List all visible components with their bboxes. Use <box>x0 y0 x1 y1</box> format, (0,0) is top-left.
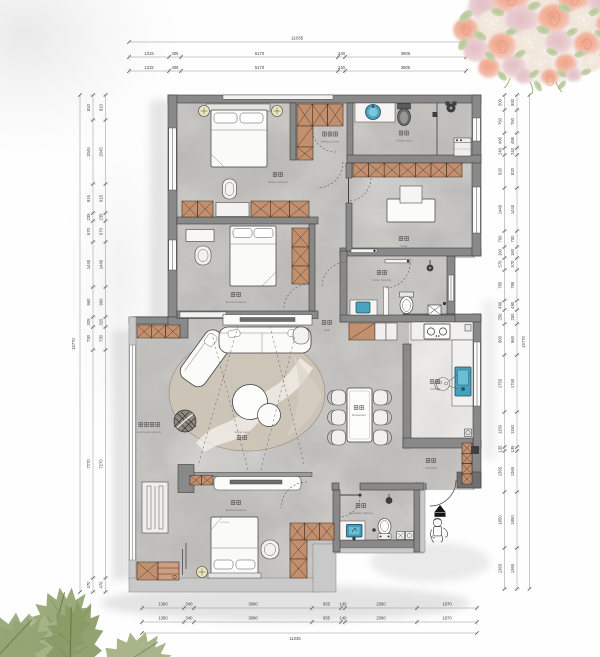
svg-text:325: 325 <box>99 318 104 326</box>
svg-text:960: 960 <box>498 335 503 343</box>
svg-text:5170: 5170 <box>255 65 265 70</box>
svg-text:235: 235 <box>86 213 91 221</box>
svg-text:960: 960 <box>86 298 91 306</box>
svg-text:Public Security: Public Security <box>373 278 392 282</box>
svg-text:495: 495 <box>498 136 503 144</box>
svg-text:1315: 1315 <box>144 51 154 56</box>
svg-text:1440: 1440 <box>510 204 515 214</box>
svg-text:955: 955 <box>323 616 331 621</box>
svg-text:3905: 3905 <box>401 51 411 56</box>
svg-text:730: 730 <box>99 334 104 342</box>
svg-text:11035: 11035 <box>291 36 304 41</box>
svg-text:11035: 11035 <box>289 636 301 641</box>
svg-text:235: 235 <box>99 213 104 221</box>
svg-text:760: 760 <box>510 117 515 125</box>
svg-text:340: 340 <box>186 602 194 607</box>
svg-text:3905: 3905 <box>401 65 411 70</box>
svg-text:490: 490 <box>510 301 515 309</box>
svg-text:1970: 1970 <box>442 616 452 621</box>
svg-text:915: 915 <box>86 194 91 202</box>
svg-text:1365: 1365 <box>510 466 515 476</box>
svg-text:820: 820 <box>510 167 515 175</box>
svg-text:5170: 5170 <box>255 51 265 56</box>
svg-text:470: 470 <box>99 581 104 589</box>
svg-text:340: 340 <box>186 616 194 621</box>
svg-text:Living room: Living room <box>235 430 250 434</box>
svg-text:15770: 15770 <box>71 338 76 350</box>
svg-text:490: 490 <box>498 301 503 309</box>
svg-text:250: 250 <box>498 313 503 321</box>
svg-text:1440: 1440 <box>99 259 104 269</box>
svg-text:670: 670 <box>86 227 91 235</box>
svg-text:1380: 1380 <box>158 616 168 621</box>
svg-text:1150: 1150 <box>498 424 503 434</box>
svg-text:2045: 2045 <box>99 147 104 157</box>
svg-text:1365: 1365 <box>498 466 503 476</box>
svg-text:Master bedroom: Master bedroom <box>268 180 289 184</box>
svg-text:135: 135 <box>510 445 515 453</box>
svg-text:810: 810 <box>99 103 104 111</box>
svg-text:Study: Study <box>400 244 408 248</box>
svg-text:Landscape balcony: Landscape balcony <box>137 430 162 434</box>
svg-text:Walking Closet: Walking Closet <box>321 140 340 144</box>
svg-text:Second bedroom: Second bedroom <box>225 508 247 512</box>
svg-text:240: 240 <box>510 147 515 155</box>
svg-text:405: 405 <box>172 65 180 70</box>
svg-text:1440: 1440 <box>86 259 91 269</box>
svg-text:1970: 1970 <box>442 602 452 607</box>
svg-text:240: 240 <box>498 147 503 155</box>
svg-text:820: 820 <box>498 167 503 175</box>
svg-text:3890: 3890 <box>248 602 258 607</box>
svg-text:2360: 2360 <box>376 616 386 621</box>
svg-text:785: 785 <box>498 281 503 289</box>
svg-text:700: 700 <box>498 235 503 243</box>
svg-text:160: 160 <box>510 248 515 256</box>
svg-text:Secondary defense: Secondary defense <box>349 511 374 515</box>
svg-text:1850: 1850 <box>498 515 503 525</box>
svg-text:Restaurant: Restaurant <box>352 413 366 417</box>
svg-text:140: 140 <box>340 616 348 621</box>
svg-text:810: 810 <box>86 103 91 111</box>
svg-text:960: 960 <box>99 298 104 306</box>
svg-text:470: 470 <box>86 581 91 589</box>
svg-text:7270: 7270 <box>99 459 104 469</box>
svg-text:135: 135 <box>498 445 503 453</box>
svg-text:325: 325 <box>86 318 91 326</box>
svg-text:1360: 1360 <box>498 563 503 573</box>
svg-text:15770: 15770 <box>521 336 526 348</box>
svg-text:Kitchen: Kitchen <box>430 387 440 391</box>
svg-text:955: 955 <box>323 602 331 607</box>
svg-text:1440: 1440 <box>498 204 503 214</box>
svg-text:1150: 1150 <box>510 424 515 434</box>
svg-text:500: 500 <box>498 98 503 106</box>
svg-text:1750: 1750 <box>498 378 503 388</box>
svg-text:670: 670 <box>99 227 104 235</box>
svg-text:500: 500 <box>510 98 515 106</box>
svg-text:2045: 2045 <box>86 147 91 157</box>
svg-text:250: 250 <box>510 313 515 321</box>
svg-text:1360: 1360 <box>510 563 515 573</box>
svg-text:140: 140 <box>340 602 348 607</box>
svg-text:Aisle: Aisle <box>324 328 331 332</box>
svg-text:960: 960 <box>510 335 515 343</box>
svg-text:915: 915 <box>99 194 104 202</box>
svg-text:785: 785 <box>510 281 515 289</box>
svg-text:570: 570 <box>510 260 515 268</box>
svg-text:700: 700 <box>510 235 515 243</box>
svg-text:240: 240 <box>338 65 346 70</box>
svg-text:3890: 3890 <box>248 616 258 621</box>
svg-text:1500/1800: 1500/1800 <box>220 522 230 524</box>
svg-text:730: 730 <box>86 334 91 342</box>
svg-text:7270: 7270 <box>86 459 91 469</box>
svg-text:160: 160 <box>498 248 503 256</box>
svg-text:570: 570 <box>498 260 503 268</box>
svg-text:Hall Walk: Hall Walk <box>425 466 437 470</box>
svg-text:240: 240 <box>338 51 346 56</box>
svg-text:1380: 1380 <box>158 602 168 607</box>
svg-text:Second bedroom: Second bedroom <box>225 300 247 304</box>
svg-text:1750: 1750 <box>510 378 515 388</box>
svg-text:495: 495 <box>510 136 515 144</box>
svg-text:760: 760 <box>498 117 503 125</box>
svg-text:Master bath: Master bath <box>397 139 412 143</box>
svg-text:405: 405 <box>172 51 180 56</box>
svg-text:2360: 2360 <box>376 602 386 607</box>
svg-text:1850: 1850 <box>510 515 515 525</box>
svg-text:1315: 1315 <box>144 65 154 70</box>
